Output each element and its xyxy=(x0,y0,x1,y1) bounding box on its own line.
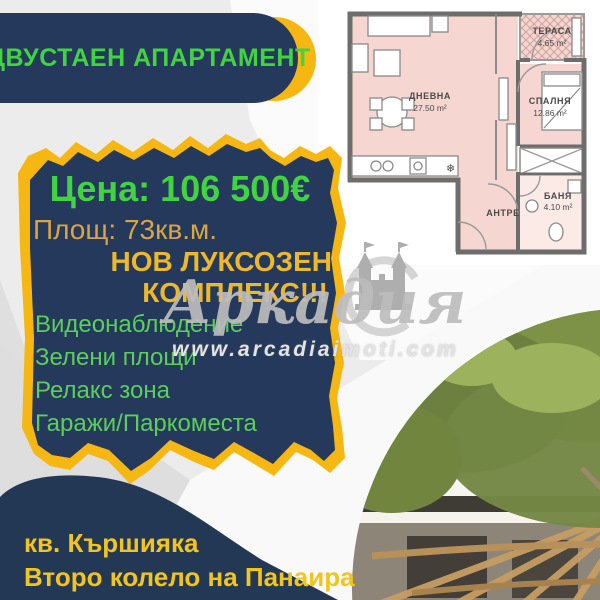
real-estate-poster: ❄ ДНЕВНА 27.50 m² СПАЛНЯ 12.86 m² ТЕРАСА… xyxy=(0,0,600,600)
room-area-bedroom: 12.86 m² xyxy=(533,108,567,118)
room-label-hall: АНТРЕ xyxy=(486,208,520,218)
room-label-terrace: ТЕРАСА xyxy=(532,26,571,36)
location-district: кв. Кършияка xyxy=(24,528,198,559)
room-area-living: 27.50 m² xyxy=(413,103,447,113)
room-label-living: ДНЕВНА xyxy=(409,91,451,101)
location-landmark: Второ колело на Панаира xyxy=(24,562,355,593)
room-label-bath: БАНЯ xyxy=(544,191,572,201)
floor-plan: ❄ ДНЕВНА 27.50 m² СПАЛНЯ 12.86 m² ТЕРАСА… xyxy=(318,0,600,265)
feature-item: Гаражи/Паркоместа xyxy=(35,407,257,440)
price-text: Цена: 106 500€ xyxy=(25,168,335,210)
area-text: Площ: 73кв.м. xyxy=(33,214,217,246)
watermark-brand: Аркадия xyxy=(163,268,466,338)
listing-type-title: ДВУСТАЕН АПАРТАМЕНТ xyxy=(0,44,311,73)
watermark-website: www.arcadiaimoti.com xyxy=(172,338,459,362)
room-label-bedroom: СПАЛНЯ xyxy=(529,96,571,106)
feature-item: Релакс зона xyxy=(35,374,257,407)
room-area-terrace: 4.65 m² xyxy=(538,38,567,48)
svg-text:❄: ❄ xyxy=(446,163,455,175)
room-area-bath: 4.10 m² xyxy=(544,202,573,212)
top-banner: ДВУСТАЕН АПАРТАМЕНТ xyxy=(0,13,298,103)
